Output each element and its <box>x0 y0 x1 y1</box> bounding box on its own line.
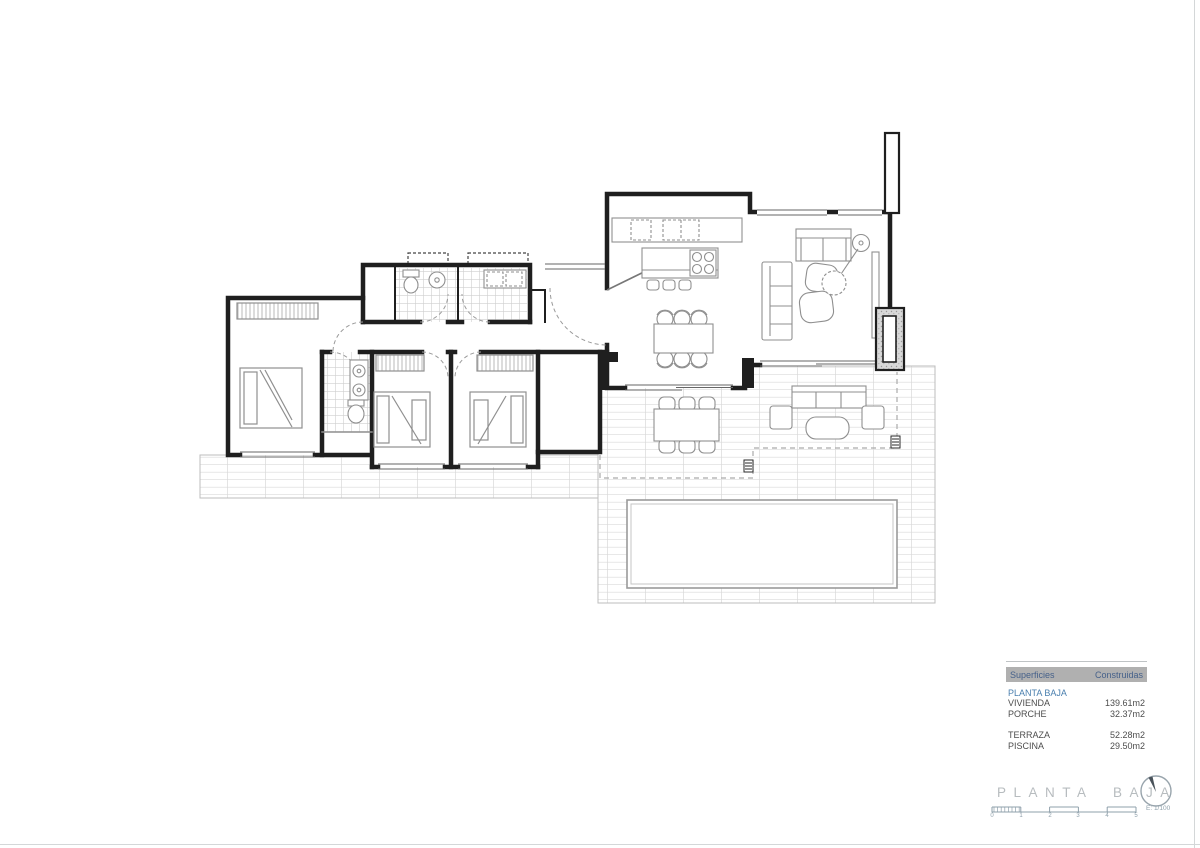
row-label: PISCINA <box>1008 741 1044 752</box>
row-label: PORCHE <box>1008 709 1047 720</box>
toilet-icon <box>403 270 419 293</box>
window-living-north <box>757 206 882 218</box>
table-header-col2: Construidas <box>1095 670 1143 680</box>
outdoor-armchair-icon <box>770 406 792 429</box>
table-header-col1: Superficies <box>1010 670 1055 680</box>
table-section-label: PLANTA BAJA <box>1008 688 1147 698</box>
fireplace-icon <box>876 308 904 370</box>
laundry-counter <box>484 270 526 288</box>
sink-icon <box>429 272 445 288</box>
outdoor-coffee-table-icon <box>806 417 849 439</box>
row-value: 32.37m2 <box>1110 709 1145 720</box>
stool-icon <box>647 280 691 290</box>
outdoor-armchair-icon <box>862 406 884 429</box>
appliance-icon <box>631 220 651 240</box>
sink-icon <box>353 384 365 396</box>
pool <box>627 500 897 588</box>
row-value: 29.50m2 <box>1110 741 1145 752</box>
toilet-icon <box>348 400 364 423</box>
bedroom3-bed <box>470 392 526 447</box>
table-row: PORCHE 32.37m2 <box>1006 709 1147 720</box>
master-bed <box>240 368 302 428</box>
outdoor-table-icon <box>654 409 719 441</box>
scale-tick: 2 <box>1048 813 1051 819</box>
sheet-edge <box>0 844 1200 845</box>
row-label: VIVIENDA <box>1008 698 1050 709</box>
table-top-rule <box>1006 661 1147 662</box>
scale-tick: 1 <box>1019 813 1022 819</box>
scale-bar: 0 1 2 3 4 5 <box>990 802 1150 824</box>
table-row: TERRAZA 52.28m2 <box>1006 730 1147 741</box>
table-header: Superficies Construidas <box>1006 667 1147 682</box>
scale-tick: 3 <box>1076 813 1079 819</box>
scale-tick: 0 <box>990 813 993 819</box>
scale-label: E: 1/100 <box>1146 805 1170 812</box>
sink-icon <box>353 365 365 377</box>
sofa-icon <box>762 262 792 340</box>
table-row: VIVIENDA 139.61m2 <box>1006 698 1147 709</box>
outdoor-dining-set <box>654 397 719 453</box>
loveseat-icon <box>796 229 851 261</box>
chimney-wall <box>885 133 899 213</box>
plan-sheet: { "surfaces_table": { "header": { "col1"… <box>0 0 1200 848</box>
scale-tick: 5 <box>1134 813 1137 819</box>
bedroom2-bed <box>374 392 430 447</box>
surfaces-table: Superficies Construidas PLANTA BAJA VIVI… <box>1006 661 1147 751</box>
table-row: PISCINA 29.50m2 <box>1006 741 1147 752</box>
sheet-edge <box>1194 0 1195 848</box>
dining-set <box>654 310 713 368</box>
outdoor-sofa-icon <box>792 386 866 408</box>
scale-tick: 4 <box>1105 813 1108 819</box>
row-value: 52.28m2 <box>1110 730 1145 741</box>
row-label: TERRAZA <box>1008 730 1050 741</box>
row-value: 139.61m2 <box>1105 698 1145 709</box>
dining-table-icon <box>654 324 713 353</box>
